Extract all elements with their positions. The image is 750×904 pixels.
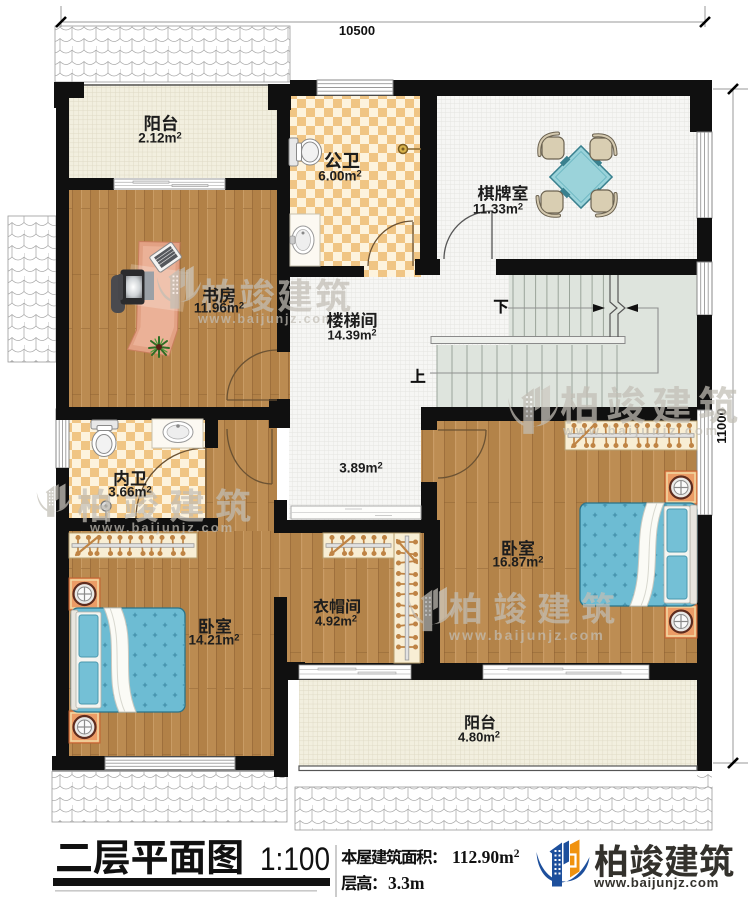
svg-text:11.33m2: 11.33m2 bbox=[473, 201, 523, 217]
svg-text:1:100: 1:100 bbox=[260, 841, 330, 877]
svg-text:3.3m: 3.3m bbox=[388, 873, 425, 893]
svg-text:14.39m2: 14.39m2 bbox=[327, 328, 376, 343]
svg-text:3.89m2: 3.89m2 bbox=[339, 460, 383, 476]
svg-text:112.90m2: 112.90m2 bbox=[452, 847, 520, 867]
svg-text:6.00m2: 6.00m2 bbox=[318, 168, 362, 184]
svg-text:www.baijunjz.com: www.baijunjz.com bbox=[448, 627, 605, 643]
svg-text:www.baijunjz.com: www.baijunjz.com bbox=[593, 875, 719, 890]
svg-text:www.baijunjz.com: www.baijunjz.com bbox=[89, 520, 234, 535]
svg-text:11.96m2: 11.96m2 bbox=[194, 300, 244, 316]
svg-text:3.66m2: 3.66m2 bbox=[108, 484, 152, 500]
svg-text:2.12m2: 2.12m2 bbox=[138, 130, 182, 146]
svg-text:10500: 10500 bbox=[339, 23, 375, 38]
svg-text:4.92m2: 4.92m2 bbox=[315, 614, 357, 629]
svg-text:www.baijunjz.com: www.baijunjz.com bbox=[562, 423, 720, 438]
svg-text:4.80m2: 4.80m2 bbox=[458, 730, 500, 745]
svg-text:16.87m2: 16.87m2 bbox=[492, 554, 543, 570]
svg-text:14.21m2: 14.21m2 bbox=[188, 632, 239, 648]
